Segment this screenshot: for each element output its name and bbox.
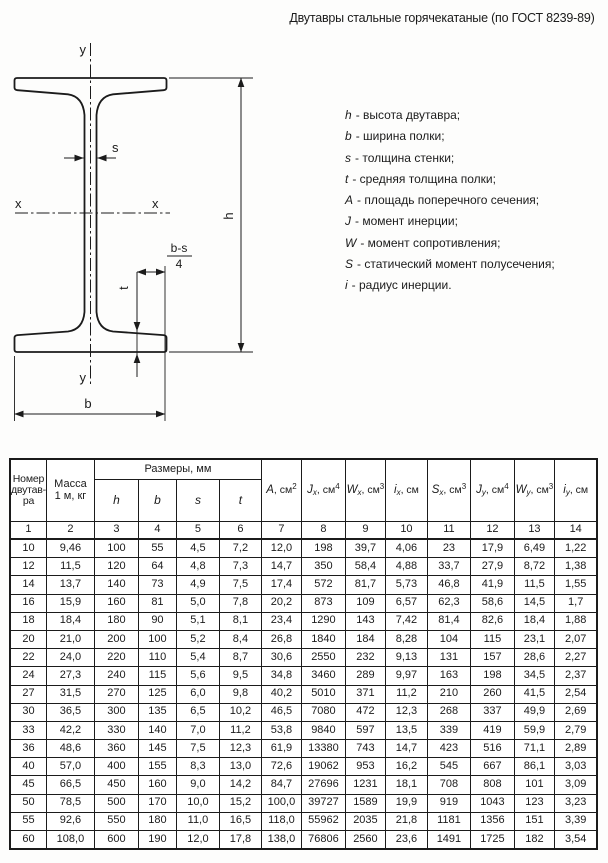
table-cell: 55 (10, 812, 46, 830)
table-cell: 190 (138, 831, 176, 850)
table-cell: 2,79 (554, 721, 597, 739)
table-cell: 360 (94, 740, 138, 758)
table-cell: 110 (138, 649, 176, 667)
page-title: Двутавры стальные горячекатаные (по ГОСТ… (280, 11, 604, 25)
table-cell: 7,2 (219, 539, 261, 558)
table-cell: 18,4 (46, 612, 94, 630)
table-cell: 13,5 (385, 721, 427, 739)
dim-t-label: t (116, 286, 131, 290)
table-cell: 419 (470, 721, 514, 739)
table-cell: 23 (427, 539, 470, 558)
table-cell: 21,8 (385, 812, 427, 830)
table-cell: 19,9 (385, 794, 427, 812)
table-cell: 270 (94, 685, 138, 703)
legend-text: - толщина стенки; (355, 151, 454, 165)
table-cell: 1,55 (554, 576, 597, 594)
table-cell: 2550 (301, 649, 345, 667)
col-header-A: A, см2 (261, 459, 301, 522)
table-cell: 7,3 (219, 558, 261, 576)
table-cell: 11,2 (219, 721, 261, 739)
table-cell: 8,1 (219, 612, 261, 630)
table-cell: 53,8 (261, 721, 301, 739)
table-row: 2224,02201105,48,730,625502329,131311572… (10, 649, 597, 667)
table-cell: 14,7 (385, 740, 427, 758)
legend-text: - ширина полки; (356, 129, 445, 143)
table-cell: 100 (138, 630, 176, 648)
table-cell: 41,9 (470, 576, 514, 594)
table-cell: 180 (138, 812, 176, 830)
table-cell: 11,2 (385, 685, 427, 703)
index-cell: 10 (385, 522, 427, 540)
table-cell: 9,46 (46, 539, 94, 558)
table-cell: 81 (138, 594, 176, 612)
col-header-Jy: Jy, см4 (470, 459, 514, 522)
col-header-mass: Масса 1 м, кг (46, 459, 94, 522)
table-cell: 8,72 (514, 558, 554, 576)
table-cell: 339 (427, 721, 470, 739)
legend-item-h: h- высота двутавра; (345, 105, 555, 126)
table-cell: 12,0 (261, 539, 301, 558)
table-cell: 5,6 (176, 667, 219, 685)
col-header-iy: iy, см (554, 459, 597, 522)
y-axis-label-bottom: y (80, 370, 87, 385)
table-cell: 115 (470, 630, 514, 648)
table-cell: 8,7 (219, 649, 261, 667)
index-cell: 7 (261, 522, 301, 540)
table-cell: 10 (10, 539, 46, 558)
index-cell: 14 (554, 522, 597, 540)
table-cell: 808 (470, 776, 514, 794)
table-cell: 157 (470, 649, 514, 667)
table-cell: 2,37 (554, 667, 597, 685)
table-cell: 24 (10, 667, 46, 685)
table-cell: 76806 (301, 831, 345, 850)
table-cell: 743 (345, 740, 385, 758)
legend-text: - средняя толщина полки; (352, 172, 496, 186)
table-cell: 23,4 (261, 612, 301, 630)
table-cell: 10,0 (176, 794, 219, 812)
table-row: 1413,7140734,97,517,457281,75,7346,841,9… (10, 576, 597, 594)
table-cell: 572 (301, 576, 345, 594)
table-cell: 23,1 (514, 630, 554, 648)
index-cell: 2 (46, 522, 94, 540)
table-cell: 60 (10, 831, 46, 850)
table-cell: 100 (94, 539, 138, 558)
table-cell: 8,3 (176, 758, 219, 776)
table-cell: 31,5 (46, 685, 94, 703)
table-cell: 1,38 (554, 558, 597, 576)
legend-symbol: S (345, 257, 353, 271)
table-cell: 500 (94, 794, 138, 812)
table-cell: 13380 (301, 740, 345, 758)
table-cell: 17,8 (219, 831, 261, 850)
table-cell: 450 (94, 776, 138, 794)
table-cell: 1290 (301, 612, 345, 630)
table-cell: 140 (138, 721, 176, 739)
table-cell: 62,3 (427, 594, 470, 612)
table-cell: 8,4 (219, 630, 261, 648)
index-cell: 5 (176, 522, 219, 540)
legend-text: - момент сопротивления; (360, 236, 500, 250)
table-cell: 400 (94, 758, 138, 776)
table-cell: 92,6 (46, 812, 94, 830)
table-cell: 84,7 (261, 776, 301, 794)
legend: h- высота двутавра; b- ширина полки; s- … (345, 105, 555, 297)
table-cell: 371 (345, 685, 385, 703)
legend-symbol: i (345, 278, 348, 292)
table-cell: 140 (94, 576, 138, 594)
table-cell: 953 (345, 758, 385, 776)
table-cell: 4,9 (176, 576, 219, 594)
table-cell: 1231 (345, 776, 385, 794)
value-symbol: W (516, 484, 527, 496)
table-cell: 58,4 (345, 558, 385, 576)
legend-symbol: s (345, 151, 351, 165)
table-cell: 708 (427, 776, 470, 794)
dim-s-label: s (112, 140, 119, 155)
table-cell: 155 (138, 758, 176, 776)
table-cell: 10,2 (219, 703, 261, 721)
table-cell: 125 (138, 685, 176, 703)
table-cell: 11,0 (176, 812, 219, 830)
table-cell: 9,97 (385, 667, 427, 685)
table-cell: 59,9 (514, 721, 554, 739)
table-cell: 71,1 (514, 740, 554, 758)
table-cell: 55962 (301, 812, 345, 830)
table-cell: 45 (10, 776, 46, 794)
table-cell: 27 (10, 685, 46, 703)
table-cell: 86,1 (514, 758, 554, 776)
table-cell: 6,49 (514, 539, 554, 558)
table-cell: 198 (470, 667, 514, 685)
table-cell: 7080 (301, 703, 345, 721)
table-cell: 58,6 (470, 594, 514, 612)
table-cell: 873 (301, 594, 345, 612)
col-header-number: Номер двутав- ра (10, 459, 46, 522)
table-cell: 1,88 (554, 612, 597, 630)
table-row: 1211,5120644,87,314,735058,44,8833,727,9… (10, 558, 597, 576)
dim-header-h: h (94, 480, 138, 522)
table-cell: 1043 (470, 794, 514, 812)
col-header-Sx: Sx, см3 (427, 459, 470, 522)
table-cell: 36,5 (46, 703, 94, 721)
table-cell: 350 (301, 558, 345, 576)
legend-item-b: b- ширина полки; (345, 126, 555, 147)
table-cell: 289 (345, 667, 385, 685)
table-row: 1818,4180905,18,123,412901437,4281,482,6… (10, 612, 597, 630)
table-cell: 8,28 (385, 630, 427, 648)
table-cell: 545 (427, 758, 470, 776)
index-cell: 12 (470, 522, 514, 540)
table-cell: 5,4 (176, 649, 219, 667)
table-cell: 300 (94, 703, 138, 721)
table-cell: 19062 (301, 758, 345, 776)
table-cell: 14,5 (514, 594, 554, 612)
table-cell: 24,0 (46, 649, 94, 667)
legend-text: - радиус инерции. (352, 278, 452, 292)
index-cell: 6 (219, 522, 261, 540)
table-row: 4057,04001558,313,072,61906295316,254566… (10, 758, 597, 776)
table-cell: 16,5 (219, 812, 261, 830)
table-cell: 33,7 (427, 558, 470, 576)
legend-symbol: h (345, 108, 352, 122)
index-cell: 13 (514, 522, 554, 540)
table-cell: 16,2 (385, 758, 427, 776)
legend-item-i: i- радиус инерции. (345, 275, 555, 296)
table-cell: 120 (94, 558, 138, 576)
table-cell: 160 (94, 594, 138, 612)
table-cell: 7,8 (219, 594, 261, 612)
table-cell: 40,2 (261, 685, 301, 703)
table-row: 60108,060019012,017,8138,076806256023,61… (10, 831, 597, 850)
dim-b-label: b (84, 396, 91, 411)
table-cell: 73 (138, 576, 176, 594)
legend-text: - статический момент полусечения; (357, 257, 555, 271)
legend-symbol: W (345, 236, 356, 250)
table-cell: 7,5 (219, 576, 261, 594)
table-cell: 3460 (301, 667, 345, 685)
table-cell: 198 (301, 539, 345, 558)
legend-symbol: b (345, 129, 352, 143)
table-cell: 34,5 (514, 667, 554, 685)
table-cell: 108,0 (46, 831, 94, 850)
table-cell: 3,09 (554, 776, 597, 794)
table-cell: 667 (470, 758, 514, 776)
col-header-Wy: Wy, см3 (514, 459, 554, 522)
table-cell: 9840 (301, 721, 345, 739)
table-cell: 12,0 (176, 831, 219, 850)
table-cell: 1,7 (554, 594, 597, 612)
table-cell: 1356 (470, 812, 514, 830)
table-row: 109,46100554,57,212,019839,74,062317,96,… (10, 539, 597, 558)
table-cell: 7,0 (176, 721, 219, 739)
legend-item-J: J- момент инерции; (345, 211, 555, 232)
ibeam-cross-section-drawing: y y x x s h b-s 4 t b (2, 30, 292, 456)
index-cell: 11 (427, 522, 470, 540)
table-cell: 28,6 (514, 649, 554, 667)
table-cell: 49,9 (514, 703, 554, 721)
table-cell: 33 (10, 721, 46, 739)
table-row: 2427,32401155,69,534,834602899,971631983… (10, 667, 597, 685)
table-cell: 5010 (301, 685, 345, 703)
table-cell: 17,9 (470, 539, 514, 558)
table-cell: 12 (10, 558, 46, 576)
table-cell: 42,2 (46, 721, 94, 739)
y-axis-label-top: y (80, 42, 87, 57)
legend-text: - момент инерции; (355, 214, 458, 228)
index-cell: 8 (301, 522, 345, 540)
table-cell: 180 (94, 612, 138, 630)
table-cell: 78,5 (46, 794, 94, 812)
legend-item-W: W- момент сопротивления; (345, 233, 555, 254)
legend-text: - площадь поперечного сечения; (357, 193, 539, 207)
table-cell: 100,0 (261, 794, 301, 812)
table-cell: 2035 (345, 812, 385, 830)
table-cell: 21,0 (46, 630, 94, 648)
table-cell: 18,4 (514, 612, 554, 630)
table-cell: 64 (138, 558, 176, 576)
table-cell: 2,07 (554, 630, 597, 648)
x-axis-label-left: x (15, 196, 22, 211)
table-cell: 1,22 (554, 539, 597, 558)
table-cell: 9,0 (176, 776, 219, 794)
table-cell: 6,0 (176, 685, 219, 703)
table-cell: 11,5 (514, 576, 554, 594)
table-cell: 5,2 (176, 630, 219, 648)
value-symbol: A (266, 484, 274, 496)
table-cell: 30,6 (261, 649, 301, 667)
table-cell: 9,13 (385, 649, 427, 667)
table-cell: 260 (470, 685, 514, 703)
legend-item-s: s- толщина стенки; (345, 148, 555, 169)
table-cell: 3,23 (554, 794, 597, 812)
table-cell: 118,0 (261, 812, 301, 830)
index-cell: 4 (138, 522, 176, 540)
table-cell: 4,88 (385, 558, 427, 576)
table-cell: 23,6 (385, 831, 427, 850)
index-cell: 9 (345, 522, 385, 540)
table-cell: 2,54 (554, 685, 597, 703)
table-cell: 109 (345, 594, 385, 612)
table-cell: 5,73 (385, 576, 427, 594)
profiles-table: Номер двутав- ра Масса 1 м, кг Размеры, … (9, 458, 598, 850)
table-row: 1615,9160815,07,820,28731096,5762,358,61… (10, 594, 597, 612)
table-cell: 7,5 (176, 740, 219, 758)
table-cell: 240 (94, 667, 138, 685)
table-cell: 200 (94, 630, 138, 648)
group-header-dimensions: Размеры, мм (94, 459, 261, 480)
table-cell: 15,9 (46, 594, 94, 612)
table-cell: 5,1 (176, 612, 219, 630)
table-cell: 30 (10, 703, 46, 721)
table-cell: 9,8 (219, 685, 261, 703)
table-cell: 17,4 (261, 576, 301, 594)
table-cell: 5,0 (176, 594, 219, 612)
table-cell: 20,2 (261, 594, 301, 612)
table-cell: 182 (514, 831, 554, 850)
table-cell: 160 (138, 776, 176, 794)
legend-item-S: S- статический момент полусечения; (345, 254, 555, 275)
table-cell: 15,2 (219, 794, 261, 812)
table-cell: 170 (138, 794, 176, 812)
table-cell: 13,7 (46, 576, 94, 594)
table-cell: 7,42 (385, 612, 427, 630)
table-cell: 1491 (427, 831, 470, 850)
table-cell: 22 (10, 649, 46, 667)
table-cell: 220 (94, 649, 138, 667)
table-cell: 143 (345, 612, 385, 630)
table-cell: 13,0 (219, 758, 261, 776)
dim-header-b: b (138, 480, 176, 522)
table-cell: 14 (10, 576, 46, 594)
table-cell: 6,57 (385, 594, 427, 612)
table-cell: 163 (427, 667, 470, 685)
table-cell: 2,27 (554, 649, 597, 667)
table-cell: 46,8 (427, 576, 470, 594)
table-cell: 115 (138, 667, 176, 685)
table-cell: 55 (138, 539, 176, 558)
table-cell: 210 (427, 685, 470, 703)
table-cell: 36 (10, 740, 46, 758)
table-row: 5078,550017010,015,2100,039727158919,991… (10, 794, 597, 812)
table-cell: 81,7 (345, 576, 385, 594)
table-cell: 104 (427, 630, 470, 648)
table-cell: 232 (345, 649, 385, 667)
table-row: 2731,52701256,09,840,2501037111,22102604… (10, 685, 597, 703)
table-cell: 61,9 (261, 740, 301, 758)
table-cell: 9,5 (219, 667, 261, 685)
value-symbol: W (347, 484, 358, 496)
table-cell: 1181 (427, 812, 470, 830)
legend-item-A: A- площадь поперечного сечения; (345, 190, 555, 211)
table-row: 2021,02001005,28,426,818401848,281041152… (10, 630, 597, 648)
table-cell: 337 (470, 703, 514, 721)
table-cell: 268 (427, 703, 470, 721)
table-cell: 27696 (301, 776, 345, 794)
table-cell: 6,5 (176, 703, 219, 721)
table-cell: 2,89 (554, 740, 597, 758)
table-cell: 1725 (470, 831, 514, 850)
table-cell: 600 (94, 831, 138, 850)
table-cell: 101 (514, 776, 554, 794)
table-cell: 4,5 (176, 539, 219, 558)
col-header-Wx: Wx, см3 (345, 459, 385, 522)
table-row: 3648,63601457,512,361,91338074314,742351… (10, 740, 597, 758)
table-cell: 138,0 (261, 831, 301, 850)
table-cell: 14,7 (261, 558, 301, 576)
table-body: 109,46100554,57,212,019839,74,062317,96,… (10, 539, 597, 849)
table-cell: 39727 (301, 794, 345, 812)
table-cell: 90 (138, 612, 176, 630)
table-cell: 34,8 (261, 667, 301, 685)
legend-symbol: t (345, 172, 348, 186)
table-cell: 26,8 (261, 630, 301, 648)
table-cell: 72,6 (261, 758, 301, 776)
table-cell: 423 (427, 740, 470, 758)
table-cell: 151 (514, 812, 554, 830)
table-cell: 27,3 (46, 667, 94, 685)
table-cell: 550 (94, 812, 138, 830)
table-cell: 2,69 (554, 703, 597, 721)
table-cell: 135 (138, 703, 176, 721)
table-cell: 1840 (301, 630, 345, 648)
table-cell: 919 (427, 794, 470, 812)
dim-h-label: h (221, 212, 236, 219)
dim-header-t: t (219, 480, 261, 522)
table-cell: 131 (427, 649, 470, 667)
table-row: 4566,54501609,014,284,727696123118,17088… (10, 776, 597, 794)
table-cell: 16 (10, 594, 46, 612)
table-cell: 11,5 (46, 558, 94, 576)
legend-symbol: A (345, 193, 353, 207)
index-cell: 1 (10, 522, 46, 540)
table-row: 3036,53001356,510,246,5708047212,3268337… (10, 703, 597, 721)
table-cell: 81,4 (427, 612, 470, 630)
legend-item-t: t- средняя толщина полки; (345, 169, 555, 190)
legend-symbol: J (345, 214, 351, 228)
table-cell: 57,0 (46, 758, 94, 776)
table-cell: 39,7 (345, 539, 385, 558)
table-cell: 516 (470, 740, 514, 758)
table-cell: 3,03 (554, 758, 597, 776)
dim-header-s: s (176, 480, 219, 522)
col-header-ix: ix, см (385, 459, 427, 522)
table-cell: 18,1 (385, 776, 427, 794)
table-cell: 4,06 (385, 539, 427, 558)
table-cell: 145 (138, 740, 176, 758)
table-cell: 14,2 (219, 776, 261, 794)
table-cell: 2560 (345, 831, 385, 850)
